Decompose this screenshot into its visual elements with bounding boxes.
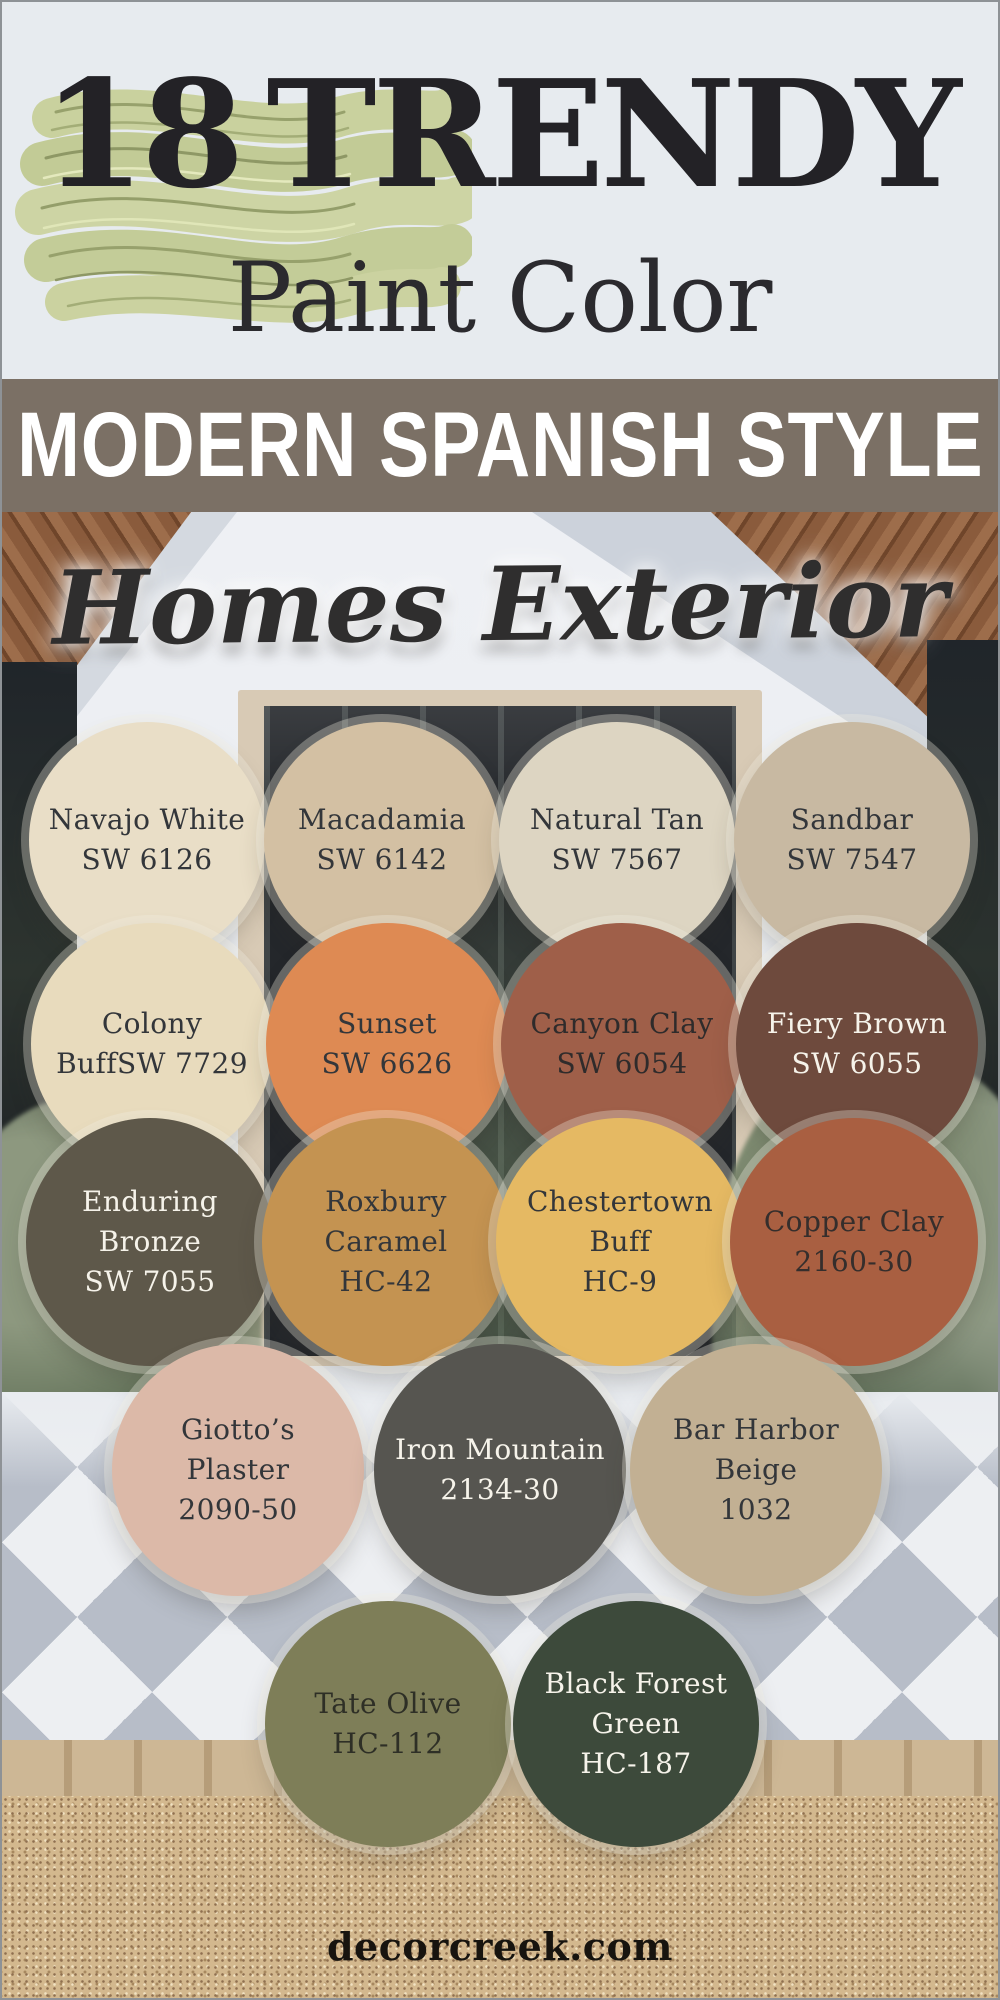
swatch-label: Iron Mountain2134-30 [395, 1430, 605, 1510]
category-banner-label: MODERN SPANISH STYLE [17, 393, 983, 498]
swatch-circle-hc-187: Black ForestGreenHC-187 [513, 1601, 759, 1847]
swatch-circle-1032: Bar HarborBeige1032 [630, 1344, 882, 1596]
swatch-label: Canyon ClaySW 6054 [530, 1004, 713, 1084]
pin-count: 18 [42, 47, 240, 221]
swatch-circle-hc-112: Tate OliveHC-112 [265, 1601, 511, 1847]
pin-title: 18TRENDY [2, 60, 998, 208]
gravel-ground [2, 1796, 1000, 2000]
swatch-label: SunsetSW 6626 [322, 1004, 453, 1084]
script-title: Homes Exterior [2, 550, 999, 661]
swatch-label: ColonyBuffSW 7729 [56, 1004, 248, 1084]
swatch-label: Fiery BrownSW 6055 [767, 1004, 947, 1084]
swatch-label: Tate OliveHC-112 [314, 1684, 461, 1764]
category-banner: MODERN SPANISH STYLE [2, 379, 998, 512]
swatch-circle-2134-30: Iron Mountain2134-30 [374, 1344, 626, 1596]
swatch-label: SandbarSW 7547 [787, 800, 918, 880]
site-footer: decorcreek.com [2, 1924, 998, 1969]
swatch-label: ChestertownBuffHC-9 [527, 1182, 713, 1301]
swatch-label: Black ForestGreenHC-187 [545, 1664, 728, 1783]
swatch-circle-sw-7055: EnduringBronzeSW 7055 [26, 1118, 274, 1366]
swatch-label: Bar HarborBeige1032 [673, 1410, 839, 1529]
swatch-label: Natural TanSW 7567 [530, 800, 704, 880]
pin-title-word: TRENDY [266, 47, 957, 221]
swatch-circle-hc-9: ChestertownBuffHC-9 [496, 1118, 744, 1366]
swatch-label: RoxburyCaramelHC-42 [324, 1182, 447, 1301]
swatch-label: MacadamiaSW 6142 [298, 800, 466, 880]
swatch-circle-2090-50: Giotto’sPlaster2090-50 [112, 1344, 364, 1596]
swatch-label: Navajo WhiteSW 6126 [49, 800, 246, 880]
pin-subtitle: Paint Color [2, 248, 998, 349]
swatch-label: Copper Clay2160-30 [764, 1202, 944, 1282]
swatch-label: Giotto’sPlaster2090-50 [178, 1410, 297, 1529]
swatch-circle-hc-42: RoxburyCaramelHC-42 [262, 1118, 510, 1366]
swatch-circle-2160-30: Copper Clay2160-30 [730, 1118, 978, 1366]
pin-infographic: 18TRENDY Paint Color MODERN SPANISH STYL… [0, 0, 1000, 2000]
swatch-label: EnduringBronzeSW 7055 [82, 1182, 218, 1301]
